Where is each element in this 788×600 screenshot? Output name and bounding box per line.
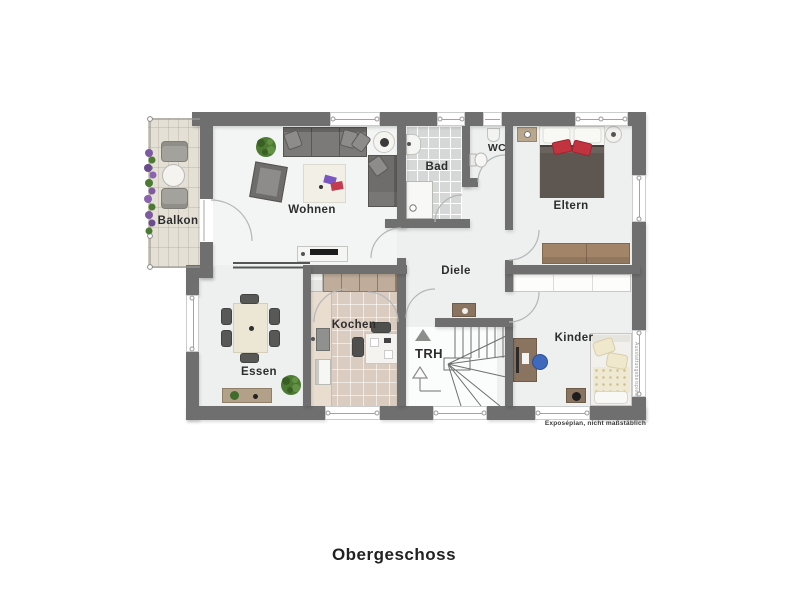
decor-dot [319,185,323,189]
rug [303,164,346,203]
table-center-dot [249,326,254,331]
window [330,112,380,126]
dining-chair [269,308,280,325]
side-table [373,131,395,153]
dining-chair [269,330,280,347]
wall [487,406,535,420]
kids-nightstand [566,388,586,403]
lamp [524,131,531,138]
wall [186,265,213,278]
window [433,406,487,420]
sideboard [222,388,272,403]
table-item [384,338,391,343]
corner-sofa [368,155,399,207]
page-title: Obergeschoss [332,545,456,565]
kitchen-chair [352,337,364,357]
room-label-diele: Diele [441,265,471,277]
sofa [283,127,367,157]
room-label-kinder: Kinder [555,332,594,344]
floorplan-canvas: Balkon Wohnen Bad WC Eltern Diele Essen … [0,0,788,600]
wall [505,322,513,406]
window [325,406,380,420]
dining-chair [240,294,259,304]
plate [384,350,393,359]
paper [522,353,529,364]
speaker-dot [301,252,305,256]
armchair [249,161,288,202]
tv [310,249,338,255]
disclaimer-note: Exposéplan, nicht maßstäblich [545,420,646,427]
magazine [330,181,343,191]
bathroom-sink [406,134,421,155]
monitor [516,347,519,373]
wall [462,178,478,187]
wall [186,406,325,420]
dining-chair [221,330,232,347]
wall [397,126,406,228]
lamp-dot [611,132,616,137]
table-plant [380,138,389,147]
sideboard-dot [253,394,258,399]
kids-blanket [593,367,630,393]
wall [200,126,213,199]
kids-bed [590,333,632,406]
wall [632,222,646,330]
dining-chair [240,353,259,363]
armchair-cushion [256,167,281,196]
dining-chair [221,308,232,325]
room-label-bad: Bad [426,161,449,173]
window [437,112,465,126]
wall [590,406,646,420]
wall [505,126,513,230]
ball [572,392,581,401]
dining-table [233,303,268,353]
floor-trh [406,327,497,406]
tv-lowboard [297,246,348,262]
shower [406,181,433,219]
room-label-eltern: Eltern [554,200,589,212]
balcony-chair [161,141,188,162]
wall [505,265,640,274]
window [186,295,199,352]
balcony-chair [161,188,188,209]
room-label-essen: Essen [241,366,277,378]
wall [186,278,199,295]
wall [310,265,407,274]
stove [315,359,331,385]
room-label-wohnen: Wohnen [288,204,336,216]
window [632,175,646,222]
duvet-foot [594,391,628,404]
wardrobe [542,243,630,264]
desk-chair [532,354,548,370]
wall [435,318,513,327]
wall [303,265,311,406]
cabinet-dot [462,308,468,314]
room-label-balkon: Balkon [158,215,199,227]
kitchen-table [365,333,398,364]
bed-blanket [540,145,604,198]
balcony-table [162,164,185,187]
wall [632,126,646,175]
sideboard-plant [230,391,239,400]
window [535,406,590,420]
room-label-wc: WC [488,142,506,154]
built-in-closet [513,274,631,292]
room-label-trh: TRH [415,346,443,361]
window [575,112,628,126]
wall [385,219,470,228]
vertical-watermark: Ausstattungsbeispiele [633,342,639,397]
room-label-kochen: Kochen [332,319,377,331]
wc-sink [487,128,500,142]
headboard [592,335,630,342]
plate [370,338,379,347]
wall [397,258,406,406]
nightstand [517,127,537,142]
nightstand-round [605,126,622,143]
wall [380,406,433,420]
hall-cabinet [452,303,476,317]
window [483,112,502,126]
balcony-door-opening [200,199,213,242]
kitchen-sink [316,328,330,351]
